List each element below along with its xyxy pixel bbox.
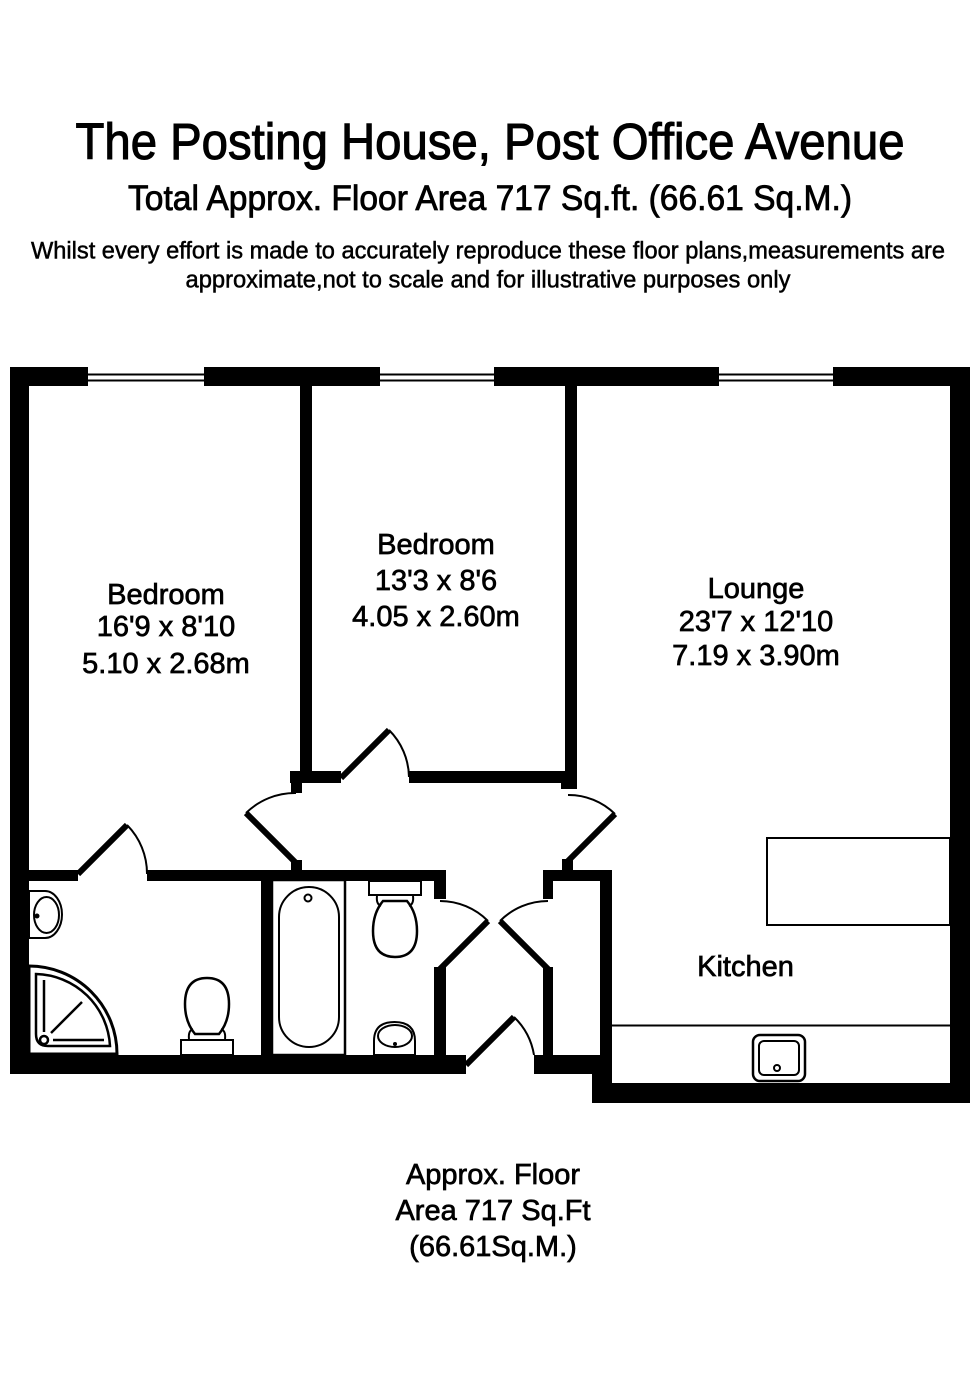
svg-text:16'9 x 8'10: 16'9 x 8'10 (97, 611, 235, 643)
svg-text:Bedroom: Bedroom (107, 579, 225, 611)
svg-text:Kitchen: Kitchen (697, 951, 794, 983)
svg-text:Total Approx. Floor Area 717 S: Total Approx. Floor Area 717 Sq.ft. (66.… (128, 179, 852, 218)
svg-text:Area 717 Sq.Ft: Area 717 Sq.Ft (395, 1195, 590, 1227)
svg-text:approximate,not to scale and f: approximate,not to scale and for illustr… (186, 267, 791, 294)
svg-text:Bedroom: Bedroom (377, 529, 495, 561)
svg-text:23'7 x 12'10: 23'7 x 12'10 (679, 606, 834, 638)
svg-text:(66.61Sq.M.): (66.61Sq.M.) (409, 1231, 577, 1263)
svg-text:Lounge: Lounge (708, 573, 805, 605)
svg-text:4.05 x 2.60m: 4.05 x 2.60m (352, 601, 520, 633)
svg-text:13'3 x 8'6: 13'3 x 8'6 (375, 565, 497, 597)
svg-text:7.19 x 3.90m: 7.19 x 3.90m (672, 640, 840, 672)
svg-text:Approx. Floor: Approx. Floor (406, 1159, 580, 1191)
svg-text:5.10 x 2.68m: 5.10 x 2.68m (82, 648, 250, 680)
svg-text:Whilst every effort is made to: Whilst every effort is made to accuratel… (31, 238, 945, 265)
svg-text:The Posting House, Post Office: The Posting House, Post Office Avenue (76, 113, 905, 170)
